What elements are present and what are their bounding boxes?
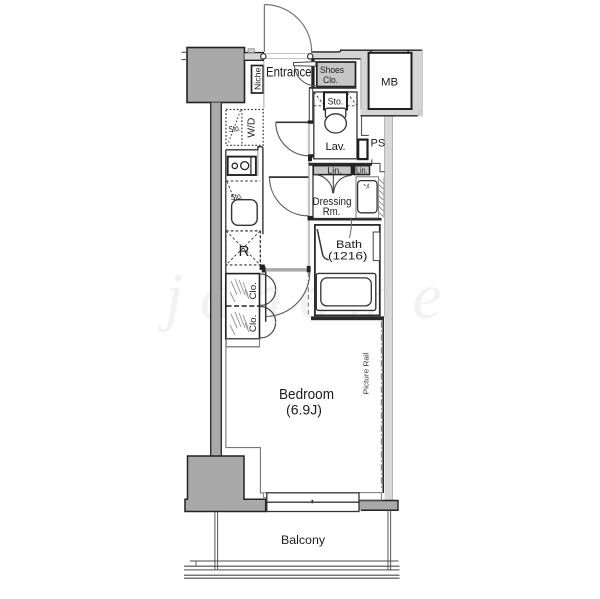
svg-text:Clo.: Clo.: [248, 282, 258, 300]
svg-text:MB: MB: [381, 77, 398, 89]
svg-text:Sto.: Sto.: [328, 97, 344, 107]
svg-text:Shoes: Shoes: [320, 64, 344, 75]
svg-text:PS: PS: [371, 137, 386, 149]
svg-text:(1216): (1216): [328, 251, 368, 263]
svg-text:Niche: Niche: [252, 67, 262, 90]
svg-text:Bath: Bath: [336, 239, 362, 251]
svg-text:W/D: W/D: [247, 118, 258, 138]
svg-text:Sto.: Sto.: [228, 123, 241, 135]
svg-text:Lin.: Lin.: [356, 166, 368, 176]
svg-text:(6.9J): (6.9J): [286, 402, 322, 418]
svg-text:Entrance: Entrance: [266, 64, 312, 79]
svg-text:Picture Rail: Picture Rail: [363, 352, 371, 394]
svg-text:Rm.: Rm.: [323, 206, 341, 218]
svg-text:Lin.: Lin.: [327, 166, 342, 176]
svg-text:Clo.: Clo.: [248, 315, 258, 333]
svg-text:Clo.: Clo.: [323, 74, 338, 85]
svg-text:Balcony: Balcony: [281, 533, 326, 547]
svg-text:R: R: [239, 243, 250, 260]
svg-text:Lav.: Lav.: [326, 141, 346, 153]
svg-text:Bedroom: Bedroom: [279, 387, 334, 403]
